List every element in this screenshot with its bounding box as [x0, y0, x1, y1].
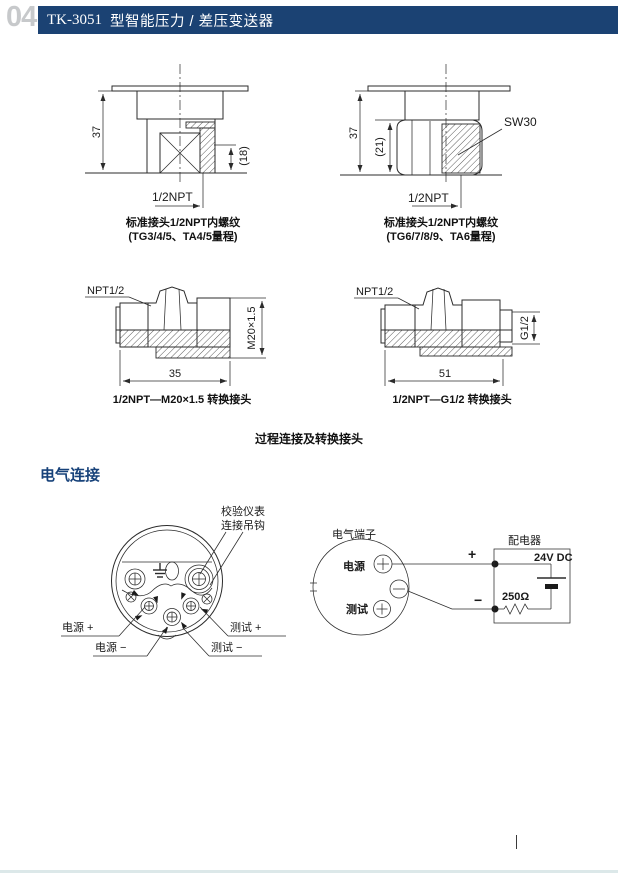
drawing-adapter-g12: NPT1/2 G1/2 51 1/2NPT—G1/2 转换接	[335, 278, 570, 410]
drawing-caption-line2: (TG3/4/5、TA4/5量程)	[128, 229, 238, 243]
battery-icon	[528, 564, 566, 609]
dim-label: 37	[348, 127, 360, 139]
thread-label: 1/2NPT	[152, 190, 193, 204]
node-minus	[492, 606, 499, 613]
dim-depth-18: (18)	[214, 145, 250, 170]
power-plus-terminal-icon	[374, 555, 392, 573]
dim-height-37: 37	[348, 91, 368, 172]
housing-body	[112, 526, 223, 640]
process-section-caption: 过程连接及转换接头	[0, 430, 618, 447]
dim-g12: G1/2	[512, 312, 540, 344]
page-edge-mark	[516, 835, 517, 849]
thread-label: NPT1/2	[87, 285, 124, 297]
connector-body	[85, 64, 248, 184]
hook-label-line2: 连接吊钩	[221, 518, 265, 532]
dim-label: 35	[169, 368, 181, 380]
title-bar: TK-3051 型智能压力 / 差压变送器	[38, 6, 618, 34]
voltage-label: 24V DC	[534, 552, 573, 564]
test-label: 测试	[346, 602, 368, 616]
minus-sign: −	[474, 592, 482, 608]
dim-label: M20×1.5	[246, 306, 258, 349]
connector-body	[340, 64, 510, 184]
resistor-icon	[504, 604, 528, 614]
test-minus-label: 测试 −	[211, 641, 242, 654]
hook-callout: 校验仪表 连接吊钩	[200, 504, 265, 585]
plus-sign: +	[468, 546, 476, 562]
hook-screw-icon	[185, 565, 213, 593]
page-number: 04	[6, 1, 36, 34]
dim-height-37: 37	[91, 91, 112, 170]
doc-model: TK-3051	[47, 12, 102, 29]
hook-label-line1: 校验仪表	[221, 504, 265, 518]
thread-label: 1/2NPT	[408, 191, 449, 205]
wrench-label: SW30	[504, 115, 537, 129]
drawing-caption-line2: (TG6/7/8/9、TA6量程)	[386, 229, 496, 243]
drawing-caption: 1/2NPT—M20×1.5 转换接头	[113, 392, 251, 406]
power-plus-label: 电源 +	[62, 620, 93, 634]
terminal-circle	[310, 539, 409, 635]
distributor-label: 配电器	[508, 534, 541, 547]
resistor-label: 250Ω	[502, 591, 529, 603]
test-plus-label: 测试 +	[230, 621, 261, 634]
node-plus	[492, 561, 499, 568]
oval-opening	[166, 562, 179, 580]
power-minus-label: 电源 −	[95, 640, 126, 654]
thread-callout: 1/2NPT	[408, 175, 461, 208]
drawing-connector-tg6789: 37 (21) SW30 1/2NPT 标准接头1/2NPT内螺纹 (TG6/7…	[335, 60, 570, 250]
doc-title: 型智能压力 / 差压变送器	[110, 10, 274, 31]
wires	[392, 561, 551, 613]
drawing-adapter-m20: NPT1/2 M20×1.5 35 1/2NPT—M20×1.5 转换接头	[80, 278, 305, 410]
datasheet-page: 04 TK-3051 型智能压力 / 差压变送器 37 (18) 1/	[0, 0, 618, 873]
drawing-connector-tg345: 37 (18) 1/2NPT 标准接头1/2NPT内螺纹 (TG3/4/5、TA…	[80, 60, 300, 250]
test-plus-terminal-icon	[374, 601, 391, 618]
thread-label: NPT1/2	[356, 286, 393, 298]
power-label: 电源	[343, 559, 365, 573]
dim-label: (21)	[374, 137, 386, 157]
adapter-body	[116, 287, 230, 358]
power-minus-callout: 电源 −	[93, 627, 167, 656]
drawing-caption-line1: 标准接头1/2NPT内螺纹	[125, 215, 241, 229]
drawing-terminal-housing: 校验仪表 连接吊钩	[55, 500, 300, 672]
drawing-caption-line1: 标准接头1/2NPT内螺纹	[383, 215, 499, 229]
electrical-section-heading: 电气连接	[40, 464, 100, 485]
terminal-circle-label: 电气端子	[332, 527, 376, 541]
thread-callout: NPT1/2	[354, 286, 419, 309]
drawing-caption: 1/2NPT—G1/2 转换接头	[392, 392, 511, 406]
drawing-wiring-schematic: 电气端子 电源 测试 + − 配电器	[305, 520, 590, 642]
dim-label: (18)	[238, 146, 250, 166]
ground-icon	[153, 563, 167, 577]
adapter-body	[381, 288, 512, 356]
thread-callout: 1/2NPT	[152, 173, 203, 208]
dim-label: G1/2	[519, 316, 531, 340]
dim-m20: M20×1.5	[230, 298, 266, 358]
dim-depth-21: (21)	[374, 123, 390, 172]
power-plus-callout: 电源 +	[61, 607, 145, 636]
screw-left-icon	[125, 569, 145, 589]
dim-label: 37	[91, 126, 103, 138]
dim-label: 51	[439, 368, 451, 380]
minus-terminal-icon	[390, 580, 408, 598]
